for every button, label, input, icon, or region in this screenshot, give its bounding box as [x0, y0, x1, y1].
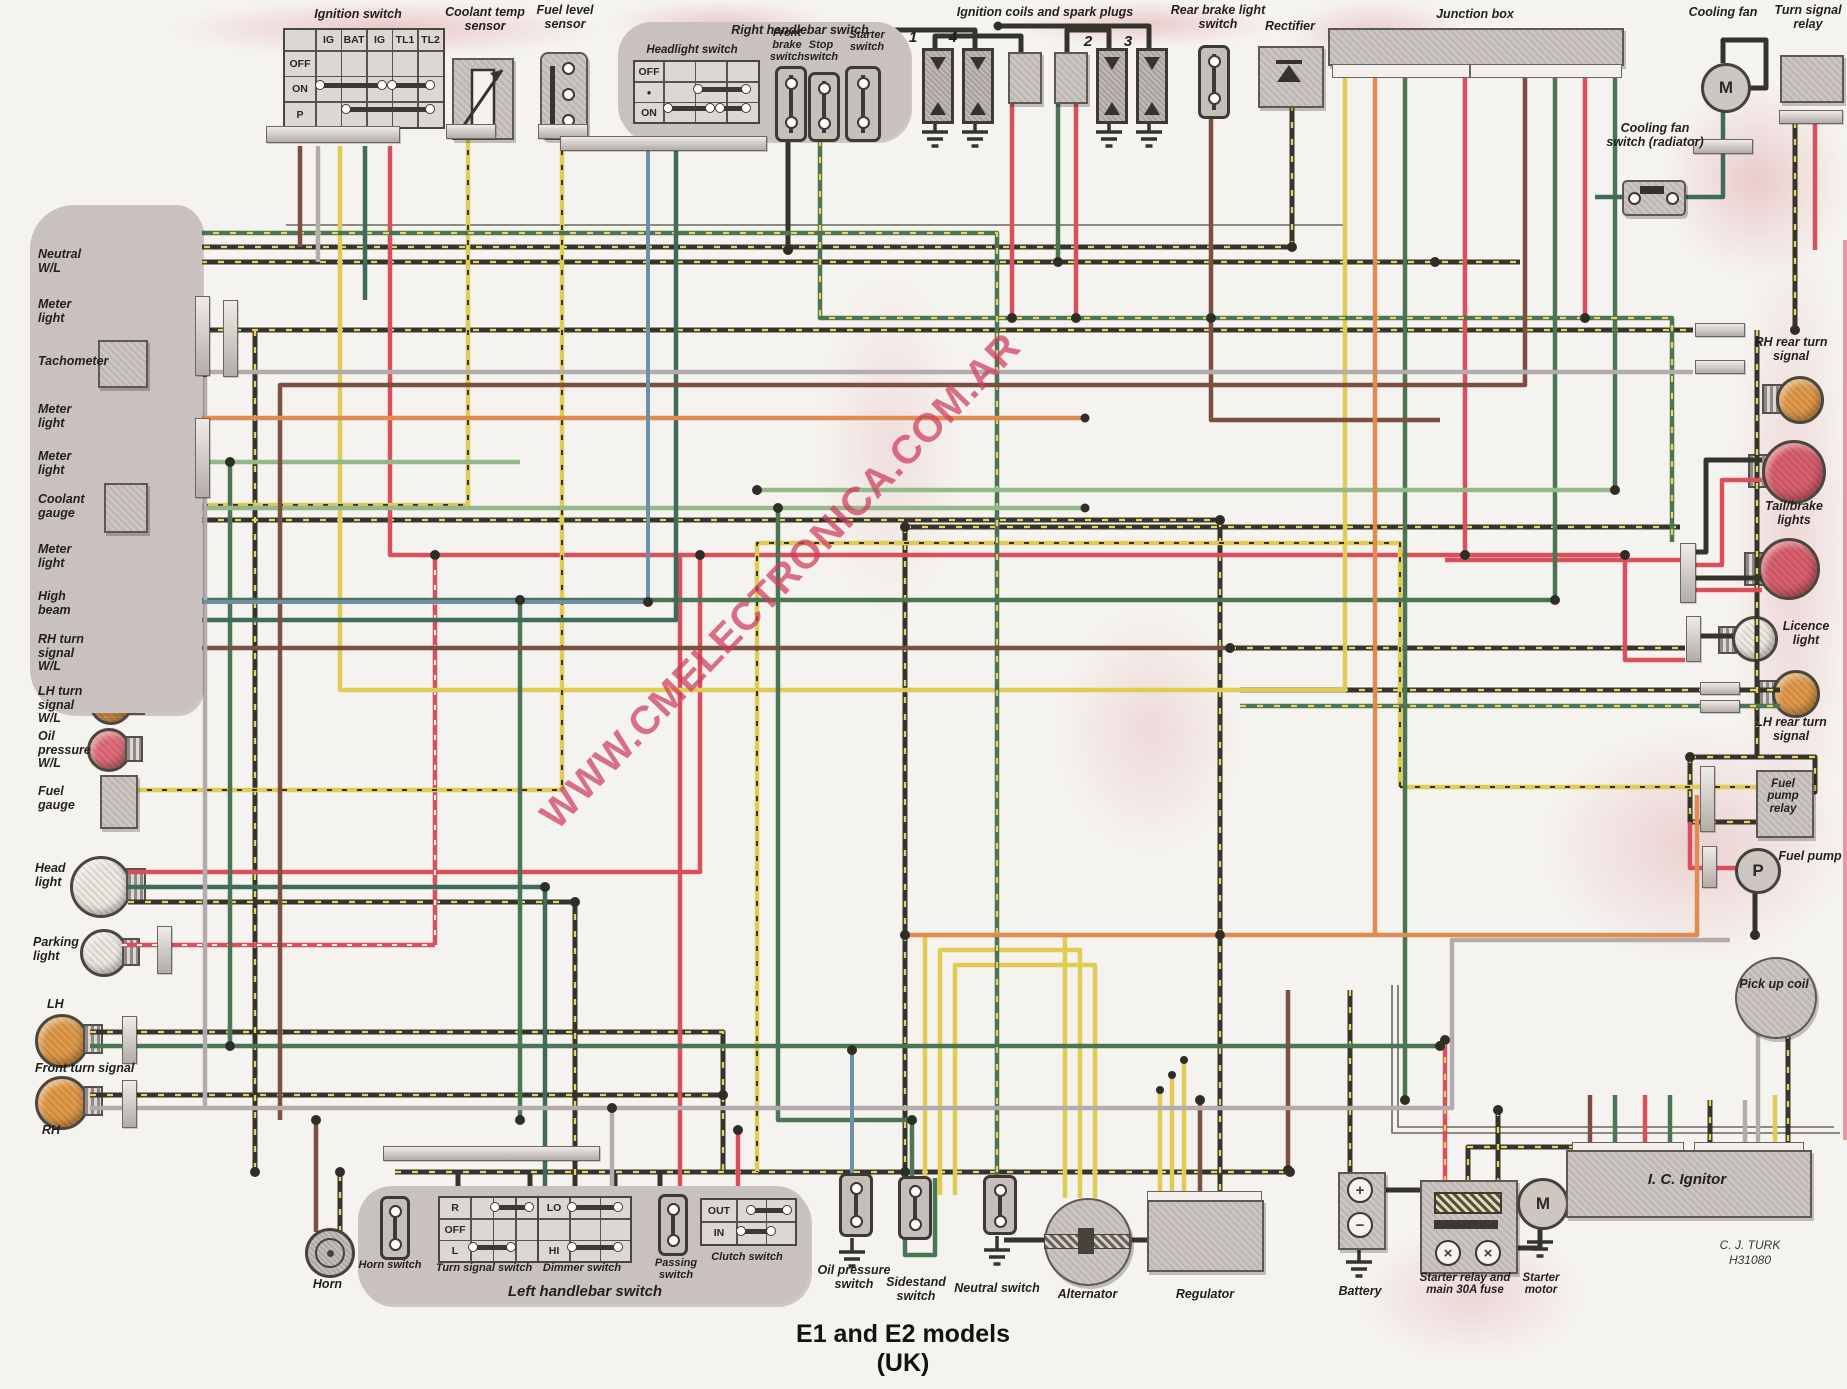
panel-meter-light-3-label: Meter light	[38, 450, 96, 477]
horn-label: Horn	[305, 1278, 350, 1292]
diode-icon	[1276, 60, 1302, 64]
ignition-switch-table: IG BAT IG TL1 TL2 OFF ON P	[283, 28, 445, 129]
clutch-row-out: OUT	[702, 1200, 736, 1221]
ignition-coils-label: Ignition coils and spark plugs	[930, 6, 1160, 20]
connector	[1680, 543, 1696, 603]
connector	[383, 1146, 600, 1161]
headlight-row-dot: ●	[635, 83, 663, 102]
rear-brake-light-switch-label: Rear brake light switch	[1168, 4, 1268, 31]
turn-signal-switch-label: Turn signal switch	[425, 1263, 543, 1275]
cooling-fan-switch-label: Cooling fan switch (radiator)	[1600, 122, 1710, 149]
connector	[1695, 360, 1745, 374]
pick-up-coil	[1735, 957, 1817, 1039]
connector	[1700, 700, 1740, 713]
ignition-col-tl2: TL2	[419, 30, 443, 50]
oil-pressure-switch	[839, 1173, 873, 1237]
left-handlebar-switch-label: Left handlebar switch	[480, 1284, 690, 1300]
credit-name: C. J. TURK	[1720, 1238, 1781, 1252]
fuel-pump: P	[1735, 848, 1781, 894]
spark-plug-1	[922, 48, 954, 124]
cylinder-1-label: 1	[905, 30, 921, 46]
panel-high-beam-label: High beam	[38, 590, 96, 617]
ignition-col-bat: BAT	[342, 30, 366, 50]
turnsig-row-l: L	[440, 1241, 470, 1261]
rectifier-label: Rectifier	[1255, 20, 1325, 34]
horn-switch	[380, 1196, 410, 1260]
battery-minus-terminal: −	[1347, 1212, 1373, 1238]
licence-light-label: Licence light	[1768, 620, 1844, 647]
neutral-switch-label: Neutral switch	[952, 1282, 1042, 1296]
battery-plus-terminal: +	[1347, 1177, 1373, 1203]
ignition-row-on: ON	[285, 77, 315, 101]
dimmer-row-hi: HI	[539, 1241, 569, 1261]
headlight-row-on: ON	[635, 103, 663, 122]
fuel-gauge	[100, 775, 138, 829]
contact-bar	[494, 1205, 530, 1210]
front-turn-signal-label: Front turn signal	[35, 1062, 155, 1076]
ignition-col-ig1: IG	[317, 30, 341, 50]
headlight-switch-label: Headlight switch	[636, 44, 748, 56]
wiring-diagram-page: Ignition switch IG BAT IG TL1 TL2 OFF ON…	[0, 0, 1847, 1389]
clutch-switch-label: Clutch switch	[697, 1252, 797, 1264]
parking-light-label: Parking light	[33, 936, 93, 963]
headlight-row-off: OFF	[635, 62, 663, 81]
wire-dashes-black	[135, 135, 1756, 1172]
stop-switch	[808, 72, 840, 142]
relay-terminal: ×	[1475, 1240, 1501, 1266]
ignition-row-p: P	[285, 103, 315, 127]
panel-fuel-gauge-label: Fuel gauge	[38, 785, 96, 812]
contact-bar	[391, 83, 431, 88]
contact-bar	[697, 87, 747, 92]
turn-signal-relay-label: Turn signal relay	[1772, 4, 1844, 31]
fuel-level-sensor-label: Fuel level sensor	[525, 4, 605, 31]
coolant-gauge	[104, 483, 148, 533]
clutch-switch-table: OUT IN	[700, 1198, 797, 1246]
ignition-coil	[1054, 52, 1088, 104]
regulator	[1147, 1200, 1264, 1272]
credit-text: C. J. TURK H31080	[1700, 1238, 1800, 1268]
lh-front-turn-label: LH	[47, 998, 81, 1012]
horn-switch-label: Horn switch	[358, 1260, 422, 1272]
fuel-pump-label: Fuel pump	[1778, 850, 1842, 864]
battery-label: Battery	[1325, 1285, 1395, 1299]
panel-meter-light-2-label: Meter light	[38, 403, 96, 430]
starter-motor-label: Starter motor	[1508, 1272, 1574, 1297]
lh-rear-turn-signal-label: LH rear turn signal	[1742, 716, 1840, 743]
dimmer-switch-label: Dimmer switch	[528, 1263, 636, 1275]
spark-plug-4	[962, 48, 994, 124]
pick-up-coil-label: Pick up coil	[1737, 978, 1811, 992]
headlight-switch-table: OFF ● ON	[633, 60, 760, 124]
turn-signal-switch-table: R OFF L	[438, 1196, 540, 1263]
cooling-fan-label: Cooling fan	[1688, 6, 1758, 20]
ic-ignitor-label: I. C. Ignitor	[1566, 1172, 1808, 1188]
main-fuse-30a	[1434, 1192, 1502, 1214]
dimmer-switch-table: LO HI	[537, 1196, 632, 1263]
rh-rear-turn-signal-label: RH rear turn signal	[1742, 336, 1840, 363]
fuel-pump-relay-label: Fuel pump relay	[1756, 778, 1810, 815]
contact-bar	[740, 1229, 772, 1234]
turn-signal-relay	[1780, 55, 1844, 103]
head-light-label: Head light	[35, 862, 85, 889]
contact-bar	[750, 1208, 788, 1213]
ignition-switch-label: Ignition switch	[288, 8, 428, 22]
ignition-col-ig2: IG	[368, 30, 392, 50]
connector	[266, 126, 400, 143]
junction-box-connector	[1332, 64, 1470, 78]
contact-bar	[667, 106, 711, 111]
ignition-col-tl1: TL1	[393, 30, 417, 50]
connector	[1779, 110, 1843, 124]
rear-brake-light-switch	[1198, 45, 1230, 119]
tail-brake-lights-label: Tail/brake lights	[1748, 500, 1840, 527]
connector	[1700, 682, 1740, 695]
turnsig-row-off: OFF	[440, 1220, 470, 1240]
starter-motor: M	[1517, 1178, 1569, 1230]
spark-plug-3	[1136, 48, 1168, 124]
passing-switch	[658, 1194, 688, 1256]
starter-switch-label: Starter switch	[838, 30, 896, 54]
starter-switch	[845, 66, 881, 142]
starter-relay: × ×	[1420, 1180, 1518, 1274]
diagram-title: E1 and E2 models (UK)	[768, 1320, 1038, 1378]
panel-meter-light-4-label: Meter light	[38, 543, 96, 570]
battery: + −	[1338, 1172, 1386, 1250]
ignition-row-off: OFF	[285, 52, 315, 76]
connector	[195, 296, 210, 376]
turnsig-row-r: R	[440, 1198, 470, 1218]
cooling-fan-switch	[1622, 180, 1686, 216]
cooling-fan-motor: M	[1701, 63, 1751, 113]
contact-bar	[571, 1205, 619, 1210]
panel-lh-turn-wl-label: LH turn signal W/L	[38, 685, 98, 726]
wires-blue	[128, 140, 852, 1173]
panel-coolant-gauge-label: Coolant gauge	[38, 493, 100, 520]
junction-box-connector	[1470, 64, 1622, 78]
connector	[1686, 616, 1701, 662]
dimmer-row-lo: LO	[539, 1198, 569, 1218]
cylinder-4-label: 4	[945, 30, 961, 46]
connector	[446, 124, 496, 139]
connector	[157, 926, 172, 974]
panel-rh-turn-wl-label: RH turn signal W/L	[38, 633, 98, 674]
contact-bar	[319, 83, 383, 88]
connector	[122, 1016, 137, 1064]
front-brake-switch	[775, 66, 807, 142]
alternator	[1044, 1198, 1132, 1286]
contact-bar	[345, 107, 431, 112]
relay-terminal: ×	[1435, 1240, 1461, 1266]
horn	[305, 1228, 355, 1278]
credit-code: H31080	[1729, 1253, 1771, 1267]
panel-neutral-wl-label: Neutral W/L	[38, 248, 96, 275]
clutch-row-in: IN	[702, 1223, 736, 1244]
regulator-label: Regulator	[1165, 1288, 1245, 1302]
connector	[560, 136, 767, 151]
spark-plug-2	[1096, 48, 1128, 124]
contact-bar	[719, 106, 747, 111]
rectifier	[1258, 46, 1324, 108]
connector	[1695, 323, 1745, 337]
cylinder-2-label: 2	[1080, 34, 1096, 50]
coolant-temp-sensor-label: Coolant temp sensor	[440, 6, 530, 33]
panel-tachometer-label: Tachometer	[38, 355, 100, 369]
contact-bar	[571, 1245, 619, 1250]
alternator-label: Alternator	[1045, 1288, 1130, 1302]
neutral-switch	[983, 1175, 1017, 1235]
panel-oil-pressure-wl-label: Oil pressure W/L	[38, 730, 100, 771]
sidestand-switch	[898, 1176, 932, 1240]
connector	[1700, 766, 1715, 832]
junction-box-label: Junction box	[1420, 8, 1530, 22]
sidestand-switch-label: Sidestand switch	[868, 1276, 964, 1303]
connector	[223, 300, 238, 377]
junction-box	[1328, 28, 1624, 66]
connector	[122, 1080, 137, 1128]
contact-bar	[472, 1245, 512, 1250]
wires-red	[122, 75, 1815, 1196]
rh-front-turn-label: RH	[42, 1124, 76, 1138]
starter-relay-label: Starter relay and main 30A fuse	[1405, 1272, 1525, 1297]
ignition-coil	[1008, 52, 1042, 104]
panel-meter-light-1-label: Meter light	[38, 298, 96, 325]
cylinder-3-label: 3	[1120, 34, 1136, 50]
connector	[1702, 846, 1717, 888]
connector	[195, 418, 210, 498]
